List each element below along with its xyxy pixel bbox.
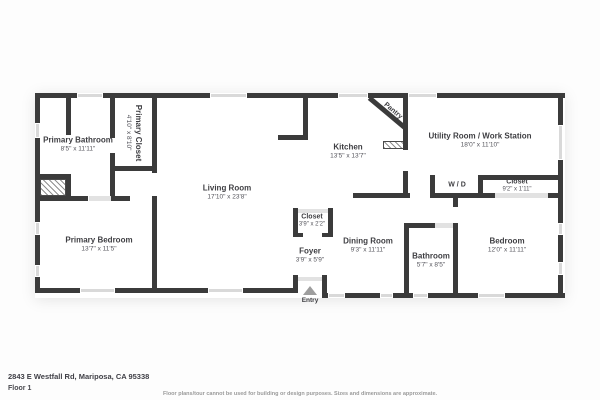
window — [413, 293, 428, 298]
wall-segment — [322, 293, 565, 298]
room-dims: 3'9" x 5'9" — [296, 257, 324, 265]
room-label-wd: W / D — [448, 180, 466, 189]
room-name: Closet — [502, 178, 531, 187]
wall-segment — [66, 98, 71, 135]
window — [35, 265, 40, 277]
room-name: Dining Room — [343, 237, 393, 247]
floor-label: Floor 1 — [8, 385, 31, 392]
room-name: Primary Closet — [132, 105, 143, 161]
room-label-utility-room: Utility Room / Work Station 18'0" x 11'1… — [429, 132, 532, 151]
window — [80, 288, 115, 293]
room-dims: 9'3" x 11'11" — [343, 247, 393, 255]
room-name: Kitchen — [330, 143, 366, 153]
wall-segment — [453, 223, 458, 293]
window — [328, 293, 345, 298]
door-opening — [298, 277, 322, 281]
wall-segment — [110, 166, 157, 171]
window — [408, 93, 437, 98]
room-name: Closet — [299, 213, 325, 222]
room-label-bathroom: Bathroom 5'7" x 8'5" — [412, 252, 450, 271]
room-label-entry: Entry — [302, 297, 319, 305]
fixture-hatch — [40, 179, 66, 196]
room-name: Primary Bathroom — [43, 136, 113, 146]
wall-segment — [35, 196, 88, 201]
room-label-closet-right: Closet 9'2" x 1'11" — [502, 178, 531, 195]
room-dims: 3'9" x 2'2" — [299, 222, 325, 230]
entry-arrow-icon — [303, 286, 317, 295]
room-label-primary-bathroom: Primary Bathroom 8'5" x 11'11" — [43, 136, 113, 155]
room-dims: 4'10" x 8'10" — [123, 105, 132, 161]
room-label-closet-foyer: Closet 3'9" x 2'2" — [299, 213, 325, 230]
wall-segment — [353, 193, 410, 198]
window — [77, 93, 103, 98]
room-label-foyer: Foyer 3'9" x 5'9" — [296, 247, 324, 266]
wall-segment — [278, 135, 308, 140]
room-name: Entry — [302, 297, 319, 305]
wall-segment — [430, 193, 495, 198]
window — [558, 223, 563, 235]
window — [380, 293, 393, 298]
room-label-dining-room: Dining Room 9'3" x 11'11" — [343, 237, 393, 256]
wall-segment — [112, 196, 130, 201]
room-dims: 17'10" x 23'8" — [203, 194, 251, 202]
wall-segment — [110, 153, 115, 201]
property-address: 2843 E Westfall Rd, Mariposa, CA 95338 — [8, 372, 149, 381]
room-label-primary-bedroom: Primary Bedroom 13'7" x 11'5" — [65, 236, 132, 255]
window — [338, 93, 368, 98]
room-dims: 12'0" x 11'11" — [488, 247, 526, 255]
wall-segment — [322, 233, 333, 237]
wall-segment — [548, 193, 558, 198]
wall-segment — [35, 288, 293, 293]
wall-segment — [152, 196, 157, 288]
window — [208, 288, 243, 293]
room-label-primary-closet: Primary Closet 4'10" x 8'10" — [123, 105, 143, 161]
room-dims: 5'7" x 8'5" — [412, 262, 450, 270]
window — [35, 123, 40, 138]
room-dims: 13'7" x 11'5" — [65, 246, 132, 254]
wall-segment — [303, 93, 308, 140]
room-name: Primary Bedroom — [65, 236, 132, 246]
wall-segment — [66, 179, 71, 196]
room-dims: 9'2" x 1'11" — [502, 187, 531, 195]
room-name: Bathroom — [412, 252, 450, 262]
window — [558, 125, 563, 160]
room-dims: 8'5" x 11'11" — [43, 146, 113, 154]
room-dims: 18'0" x 11'10" — [429, 142, 532, 150]
wall-segment — [453, 198, 458, 207]
room-name: W / D — [448, 180, 466, 189]
wall-segment — [293, 233, 303, 237]
floor-plan: Primary Bathroom 8'5" x 11'11" Primary C… — [0, 0, 600, 400]
room-label-kitchen: Kitchen 13'5" x 13'7" — [330, 143, 366, 162]
wall-segment — [152, 93, 157, 173]
room-name: Bedroom — [488, 237, 526, 247]
window — [558, 262, 563, 275]
room-name: Foyer — [296, 247, 324, 257]
room-label-living-room: Living Room 17'10" x 23'8" — [203, 184, 251, 203]
wall-segment — [110, 98, 115, 138]
disclaimer-text: Floor plans/tour cannot be used for buil… — [163, 391, 437, 397]
window — [35, 222, 40, 235]
wall-segment — [404, 223, 435, 228]
room-label-bedroom: Bedroom 12'0" x 11'11" — [488, 237, 526, 256]
room-dims: 13'5" x 13'7" — [330, 153, 366, 161]
wall-segment — [404, 223, 409, 293]
room-name: Living Room — [203, 184, 251, 194]
wall-segment — [322, 275, 327, 298]
room-name: Utility Room / Work Station — [429, 132, 532, 142]
door-opening — [435, 223, 453, 228]
door-opening — [89, 196, 111, 201]
window — [478, 293, 505, 298]
window — [210, 93, 247, 98]
